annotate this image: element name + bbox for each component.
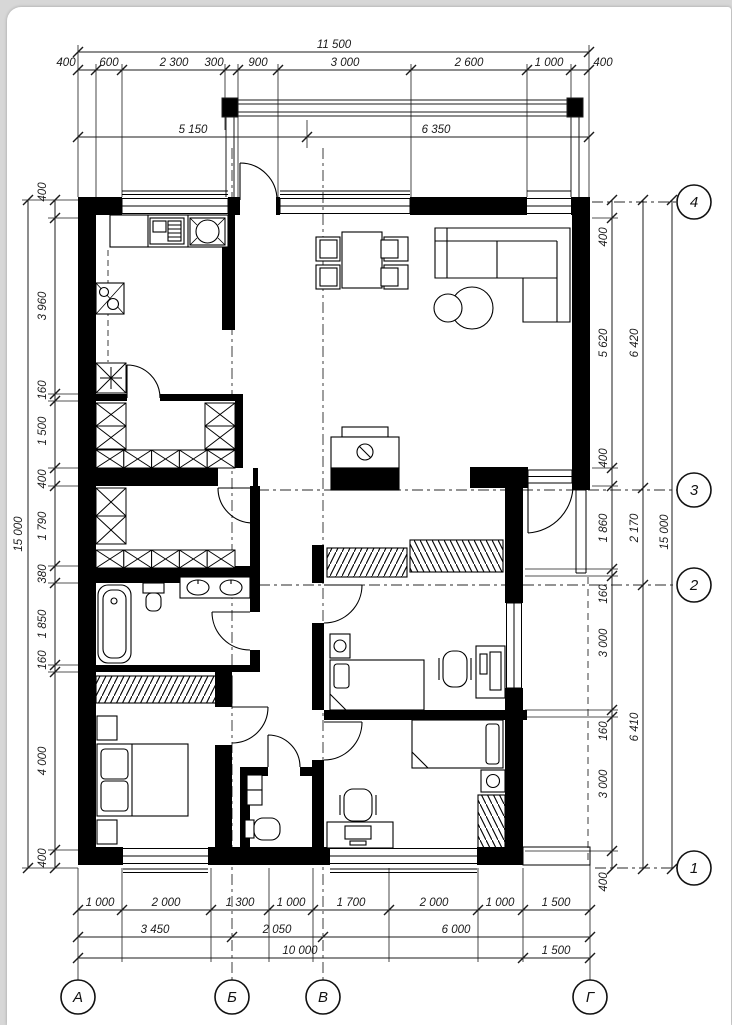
toilet-icon: [143, 583, 164, 611]
nightstand-icon: [97, 716, 117, 740]
kitchen-sink-icon: [190, 218, 225, 245]
dimension-label: 15 000: [13, 516, 25, 552]
vanity-double-sink-icon: [180, 577, 250, 598]
dimension-label: 2 050: [262, 924, 292, 936]
dimension-label: 400: [56, 57, 76, 69]
dimension-label: 1 850: [37, 609, 49, 638]
dimension-label: 400: [37, 848, 49, 868]
fridge-icon: [96, 283, 124, 314]
dimension-label: 160: [598, 721, 610, 741]
dimension-label: 15 000: [659, 514, 671, 550]
master-bed-icon: [97, 744, 188, 816]
dining-chair-icon: [316, 265, 340, 289]
dimension-label: 2 000: [151, 897, 181, 909]
floor-plan-drawing: 11 5004006002 3003009003 0002 6001 00040…: [0, 0, 732, 1025]
dimension-label: 900: [248, 57, 268, 69]
cabinet-xboxes: [96, 363, 235, 568]
bathtub-icon: [98, 585, 131, 663]
kids1-desk-icon: [476, 646, 505, 698]
coffee-table-icon: [434, 287, 493, 329]
dimension-label: 1 860: [598, 513, 610, 542]
porch-column: [567, 98, 583, 117]
wood-stove-icon: [331, 427, 399, 490]
axis-bubble-label: В: [318, 989, 328, 1006]
axis-bubble-label: 1: [690, 860, 698, 877]
office-chair-icon: [439, 651, 471, 687]
dimension-label: 600: [99, 57, 119, 69]
office-chair-icon: [340, 789, 376, 821]
dimension-label: 6 410: [629, 712, 641, 741]
dimension-label: 3 000: [598, 769, 610, 798]
kids1-nightstand-icon: [330, 634, 350, 658]
dimension-label: 10 000: [282, 945, 318, 957]
dimension-label: 1 500: [542, 897, 571, 909]
dimension-label: 1 000: [86, 897, 115, 909]
kids2-nightstand-icon: [481, 770, 505, 792]
master-wardrobe-icon: [96, 676, 232, 703]
dimension-label: 5 620: [598, 328, 610, 357]
dimension-label: 11 500: [317, 39, 352, 51]
dimension-label: 5 150: [179, 124, 208, 136]
corridor-wardrobe-icon: [410, 540, 503, 572]
dimension-label: 400: [598, 872, 610, 892]
dimension-label: 6 000: [442, 924, 471, 936]
dimension-label: 160: [598, 584, 610, 604]
dimension-label: 3 000: [331, 57, 360, 69]
dimension-label: 2 000: [419, 897, 449, 909]
kids2-bed-icon: [412, 720, 503, 768]
corridor-wardrobe-icon: [327, 548, 407, 577]
kids2-shelving-icon: [478, 795, 505, 852]
dimension-label: 1 000: [277, 897, 306, 909]
dimension-label: 400: [598, 227, 610, 247]
axis-bubble-label: Б: [227, 989, 237, 1006]
porch-canopy: [222, 98, 583, 197]
entrance-door: [240, 163, 277, 200]
terrace-door: [528, 483, 573, 533]
axis-bubble-label: 2: [689, 577, 699, 594]
dining-chair-icon: [381, 237, 408, 261]
wc-door: [268, 735, 300, 767]
dimension-label: 2 300: [159, 57, 189, 69]
kids2-desk-icon: [327, 822, 393, 848]
wc-toilet-icon: [245, 818, 280, 840]
dining-chair-icon: [381, 265, 408, 289]
dimension-label: 400: [593, 57, 613, 69]
dimension-label: 2 600: [454, 57, 484, 69]
dimension-label: 1 500: [37, 416, 49, 445]
porch-column: [222, 98, 238, 117]
master-door: [232, 707, 268, 743]
dimension-label: 1 700: [337, 897, 366, 909]
axis-bubble-label: 3: [690, 482, 699, 499]
dimension-label: 300: [204, 57, 224, 69]
dimension-label: 1 000: [486, 897, 515, 909]
dimension-label: 3 960: [37, 291, 49, 320]
nightstand-icon: [97, 820, 117, 844]
dimension-label: 380: [37, 564, 49, 584]
dressing-door: [218, 488, 253, 523]
dimension-label: 1 790: [37, 511, 49, 540]
dimension-label: 160: [37, 380, 49, 400]
dining-table-icon: [342, 232, 382, 288]
dimension-label: 6 350: [422, 124, 451, 136]
dimension-label: 6 420: [629, 328, 641, 357]
dimension-label: 1 000: [535, 57, 564, 69]
kids1-bed-icon: [330, 660, 424, 710]
dimension-label: 160: [37, 650, 49, 670]
drawing-sheet: 11 5004006002 3003009003 0002 6001 00040…: [7, 7, 731, 1025]
cooktop-icon: [150, 218, 184, 244]
dimension-label: 1 300: [226, 897, 255, 909]
dimension-label: 1 500: [542, 945, 571, 957]
dimension-label: 3 450: [141, 924, 170, 936]
furniture: [96, 215, 570, 848]
dining-chair-icon: [316, 237, 340, 261]
wc-shelf-icon: [247, 775, 262, 805]
dimension-label: 3 000: [598, 628, 610, 657]
pantry-door: [127, 365, 160, 398]
dimension-label: 400: [37, 469, 49, 489]
bathroom-door: [212, 612, 250, 650]
dimension-label: 400: [598, 448, 610, 468]
kids2-door: [324, 722, 362, 760]
kids1-door: [324, 585, 362, 623]
dimension-label: 2 170: [629, 513, 641, 543]
dimension-label: 4 000: [37, 746, 49, 775]
axis-bubble-label: 4: [690, 194, 698, 211]
axis-bubble-label: А: [72, 989, 83, 1006]
dimension-label: 400: [37, 182, 49, 202]
